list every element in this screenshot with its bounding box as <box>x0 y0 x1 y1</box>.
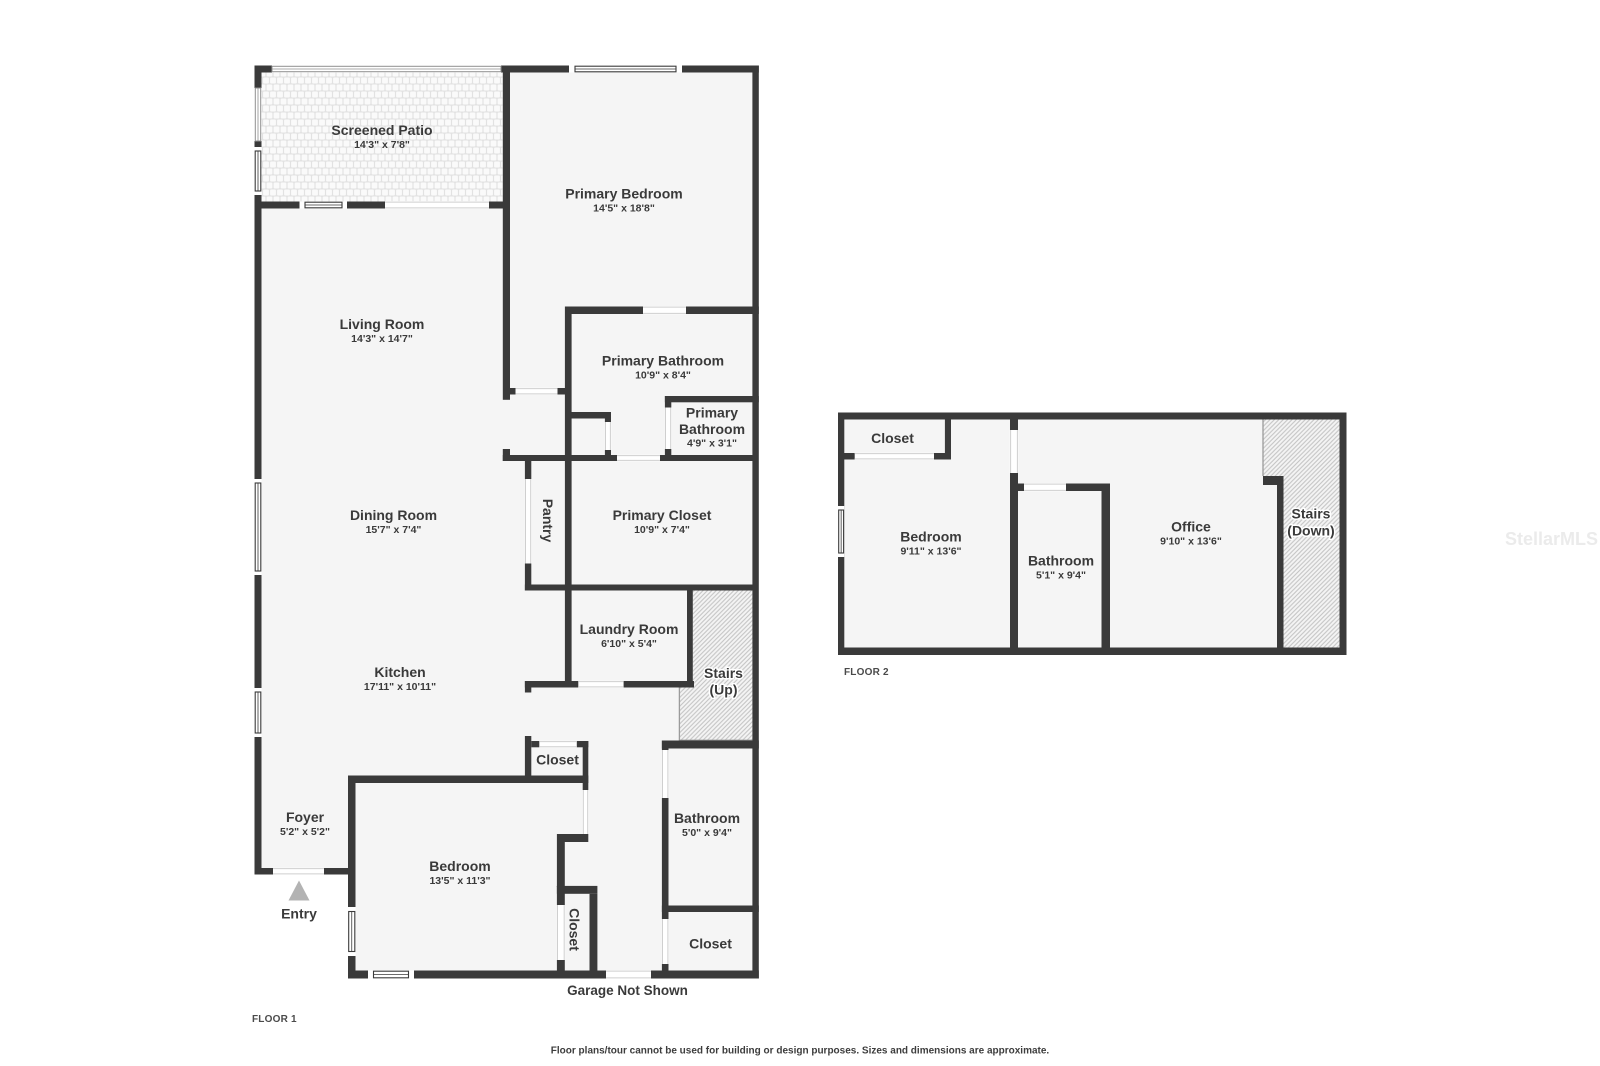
svg-text:14'3" x 14'7": 14'3" x 14'7" <box>351 333 413 345</box>
svg-text:Primary Bathroom: Primary Bathroom <box>602 353 724 369</box>
svg-text:5'0" x 9'4": 5'0" x 9'4" <box>682 827 732 839</box>
svg-text:Floor plans/tour cannot be use: Floor plans/tour cannot be used for buil… <box>551 1046 1050 1057</box>
svg-text:14'3" x 7'8": 14'3" x 7'8" <box>354 139 410 151</box>
svg-text:10'9" x 7'4": 10'9" x 7'4" <box>634 524 690 536</box>
svg-text:14'5" x 18'8": 14'5" x 18'8" <box>593 203 655 215</box>
svg-text:9'11" x 13'6": 9'11" x 13'6" <box>900 546 961 558</box>
svg-text:Closet: Closet <box>536 752 579 768</box>
svg-text:Bedroom: Bedroom <box>429 858 490 874</box>
svg-text:Stairs: Stairs <box>1292 506 1331 522</box>
svg-text:Primary Bedroom: Primary Bedroom <box>565 186 682 202</box>
svg-text:6'10" x 5'4": 6'10" x 5'4" <box>601 638 657 650</box>
svg-text:Bedroom: Bedroom <box>900 529 961 545</box>
svg-text:Office: Office <box>1171 519 1211 535</box>
svg-text:Primary: Primary <box>686 405 738 421</box>
svg-text:5'2" x 5'2": 5'2" x 5'2" <box>280 826 330 838</box>
svg-text:Entry: Entry <box>281 906 317 922</box>
svg-text:5'1" x 9'4": 5'1" x 9'4" <box>1036 570 1086 582</box>
svg-text:Laundry Room: Laundry Room <box>580 621 679 637</box>
svg-text:17'11" x 10'11": 17'11" x 10'11" <box>364 681 436 693</box>
svg-text:Bathroom: Bathroom <box>679 421 745 437</box>
svg-text:Screened Patio: Screened Patio <box>331 122 432 138</box>
svg-text:Stairs: Stairs <box>704 665 743 681</box>
svg-text:Dining Room: Dining Room <box>350 507 437 523</box>
svg-text:FLOOR 1: FLOOR 1 <box>252 1014 297 1025</box>
svg-text:Closet: Closet <box>871 430 914 446</box>
svg-text:10'9" x 8'4": 10'9" x 8'4" <box>635 370 691 382</box>
svg-text:Living Room: Living Room <box>340 316 425 332</box>
svg-text:Closet: Closet <box>567 908 583 951</box>
svg-text:Foyer: Foyer <box>286 809 325 825</box>
svg-text:Pantry: Pantry <box>540 499 556 543</box>
svg-text:FLOOR 2: FLOOR 2 <box>844 667 889 678</box>
svg-text:4'9" x 3'1": 4'9" x 3'1" <box>687 438 737 450</box>
svg-text:Bathroom: Bathroom <box>674 810 740 826</box>
svg-text:9'10" x 13'6": 9'10" x 13'6" <box>1160 536 1222 548</box>
svg-text:(Down): (Down) <box>1287 523 1334 539</box>
svg-text:13'5" x 11'3": 13'5" x 11'3" <box>429 875 490 887</box>
svg-text:StellarMLS: StellarMLS <box>1505 529 1598 549</box>
svg-text:Closet: Closet <box>689 936 732 952</box>
svg-text:Kitchen: Kitchen <box>374 664 425 680</box>
svg-text:15'7" x 7'4": 15'7" x 7'4" <box>366 524 422 536</box>
svg-text:Primary Closet: Primary Closet <box>613 507 712 523</box>
svg-text:Bathroom: Bathroom <box>1028 553 1094 569</box>
svg-text:Garage Not Shown: Garage Not Shown <box>567 983 688 998</box>
svg-text:(Up): (Up) <box>710 682 738 698</box>
